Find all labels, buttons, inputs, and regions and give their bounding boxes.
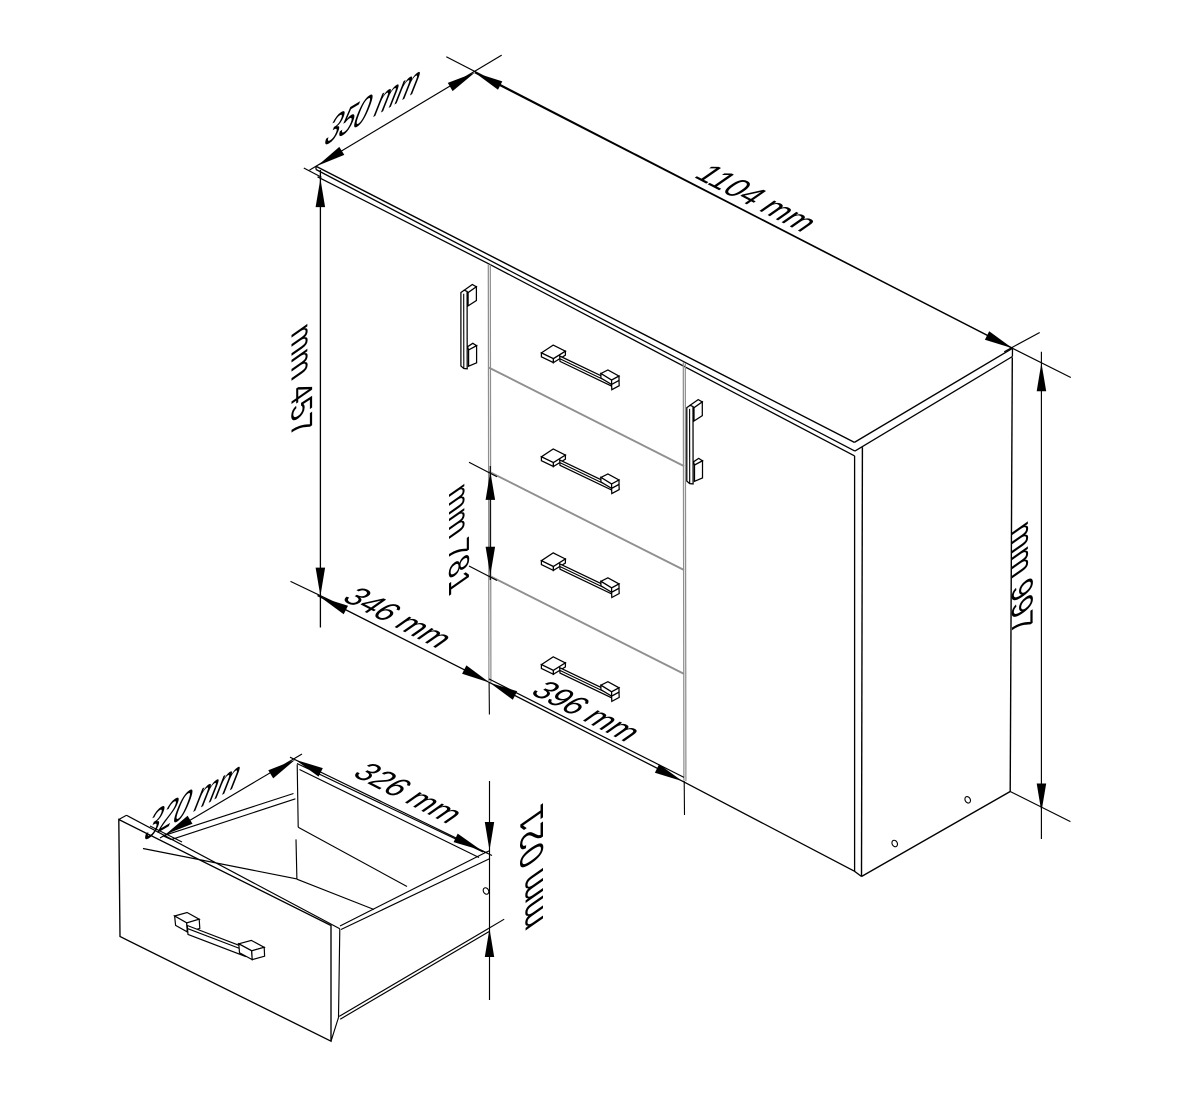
svg-text:mm 457: mm 457 xyxy=(284,315,317,447)
svg-text:mm 997: mm 997 xyxy=(1005,512,1038,644)
